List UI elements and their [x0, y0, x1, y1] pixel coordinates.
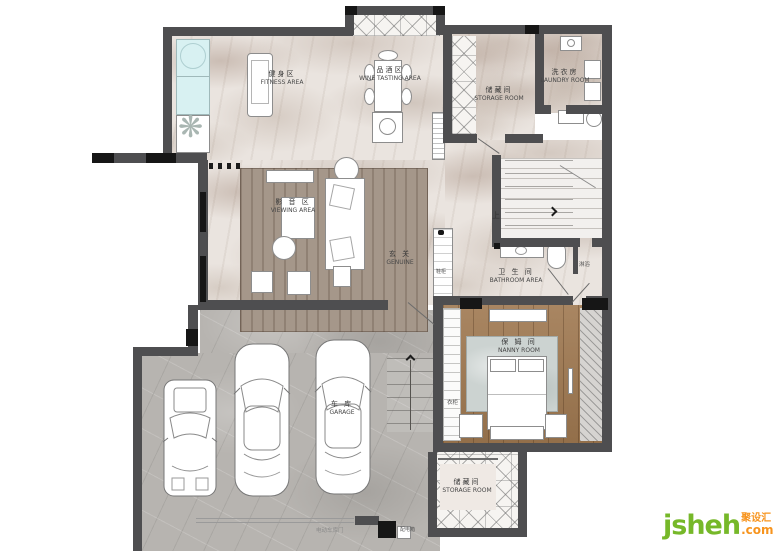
car-sedan-2 [313, 338, 373, 496]
wall-block-1 [92, 153, 114, 163]
room-label-garage: 车 库GARAGE [318, 400, 366, 417]
ottoman-round [272, 236, 296, 260]
wall-bath-top-a [492, 238, 580, 247]
stairs-garage-centerline [410, 360, 411, 430]
stool-1 [251, 271, 273, 293]
bathroom-mirror-dot [494, 243, 500, 249]
garage-step-door [186, 329, 198, 346]
wall-block-3 [345, 6, 357, 15]
label-garage-door: 电动车库门 [316, 526, 344, 534]
floor-plan: ❋ [0, 0, 780, 551]
tv-bench [266, 170, 314, 183]
storage-top-shelf-hatch [452, 36, 476, 134]
window-bay-circle [180, 43, 206, 69]
label-wardrobe: 衣柜 [447, 398, 458, 406]
room-label-viewing: 影 音 区VIEWING AREA [262, 198, 324, 215]
nanny-pillow-2 [518, 359, 544, 372]
stairs-garage [387, 358, 435, 432]
hall-left-window-2 [200, 256, 206, 302]
washer-top-drum [567, 39, 575, 47]
stool-3 [333, 266, 351, 287]
power-box [378, 521, 396, 538]
wine-chair-l2 [364, 88, 375, 105]
wall-garage-step-top [133, 347, 195, 356]
wine-glass-icon [379, 118, 396, 135]
jsheh-logo[interactable]: jsheh 聚设汇 .com [663, 512, 774, 539]
jsheh-logo-tld: .com [741, 524, 773, 537]
wall-bstorage-bottom [428, 528, 527, 537]
nanny-wardrobe-hatch [580, 308, 602, 441]
room-label-nanny: 保 姆 间NANNY ROOM [484, 338, 554, 355]
room-label-bathroom: 卫 生 间BATHROOM AREA [476, 268, 556, 285]
label-power-box: 配电箱 [400, 526, 415, 533]
wine-chair-top [378, 50, 398, 61]
wall-fitness-left [163, 27, 172, 162]
garage-door-line [196, 518, 354, 523]
room-label-fitness: 健身区FITNESS AREA [248, 70, 316, 87]
car-compact [162, 378, 218, 498]
label-stairs-up: 上 [492, 210, 500, 221]
bstorage-shelf-line [438, 458, 498, 461]
sofa-cushion-2 [329, 236, 354, 261]
wall-storage-bottom-b [505, 134, 543, 143]
nanny-bed-foot-bench [490, 426, 544, 440]
entry-shoe-cabinet [433, 228, 453, 298]
wall-shower-divider [573, 238, 578, 274]
wall-block-4 [433, 6, 445, 15]
nanny-blanket-seam [488, 394, 546, 395]
wall-nanny-bottom [433, 443, 612, 452]
wall-storage-bottom-a [443, 134, 477, 143]
wall-storage-left [443, 33, 452, 143]
label-shoe-cabinet: 鞋柜 [436, 268, 446, 275]
nanny-cabinet-right [545, 414, 567, 438]
wall-garage-bottom-stub [355, 516, 379, 525]
wall-nanny-left [433, 296, 443, 452]
wall-fitness-top [163, 27, 353, 36]
nanny-cabinet-left [459, 414, 483, 438]
wall-bstorage-right [518, 452, 527, 537]
wall-stairs-left [492, 155, 501, 247]
hall-left-window-1 [200, 192, 206, 232]
room-label-wine: 品酒区WINE TASTING AREA [354, 66, 426, 83]
wall-block-5 [525, 25, 539, 34]
room-label-entry: 玄 关GENUINE [372, 250, 428, 267]
sofa-cushion-1 [329, 184, 355, 210]
window-bay-divider [176, 76, 210, 77]
wall-bath-top-b [592, 238, 612, 247]
jsheh-logo-name: jsheh [663, 512, 740, 539]
nanny-nightstand-left [460, 298, 482, 309]
stool-2 [287, 271, 311, 295]
room-label-laundry: 洗衣房LAUNDRY ROOM [533, 68, 597, 85]
car-sedan-1 [232, 342, 292, 498]
plant-icon: ❋ [178, 113, 203, 143]
room-label-storage-bottom: 储藏间STORAGE ROOM [437, 478, 497, 495]
wall-hall-bottom [198, 300, 388, 310]
stairs-upper-steps [505, 160, 573, 236]
entry-cabinet-dot [438, 230, 444, 235]
wine-chair-r2 [401, 88, 412, 105]
label-shower: 淋浴 [579, 260, 590, 268]
wall-center-top [345, 6, 445, 15]
wall-block-2 [146, 153, 176, 163]
nanny-pillow-1 [490, 359, 516, 372]
room-label-storage-top: 储藏间STORAGE ROOM [468, 86, 530, 103]
wall-laundry-bottom-a [535, 105, 551, 114]
wall-garage-left [133, 347, 142, 551]
top-cabinet-hatch [348, 14, 440, 36]
bathroom-sink [515, 246, 527, 255]
wall-laundry-bottom-b [566, 105, 612, 114]
nanny-headboard-bench [489, 309, 547, 322]
nanny-nightstand-right [582, 298, 608, 310]
wall-bstorage-left [428, 452, 437, 537]
nanny-wall-bar [568, 368, 573, 394]
wall-nanny-top-a [433, 296, 573, 305]
